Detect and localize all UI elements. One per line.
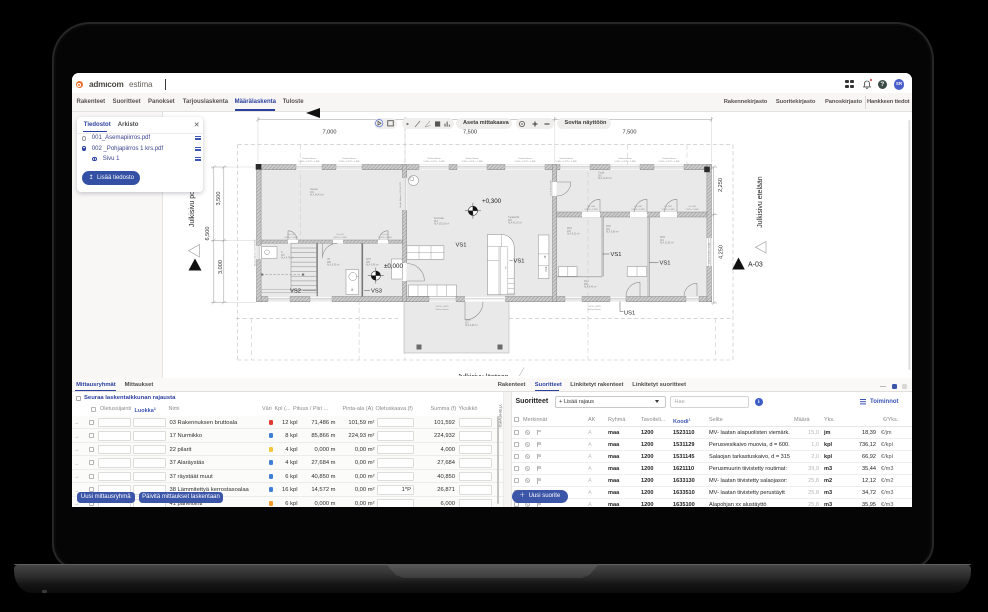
svg-text:1,970 x 2,085: 1,970 x 2,085	[631, 209, 645, 211]
svg-text:ALA 4,78 m²: ALA 4,78 m²	[281, 257, 294, 260]
svg-text:Ovi 008: Ovi 008	[664, 206, 672, 208]
svg-text:Vierha ikkuna: Vierha ikkuna	[465, 157, 479, 160]
svg-text:Ovi 0,8: Ovi 0,8	[288, 234, 296, 236]
svg-text:Käyt: Käyt	[584, 280, 589, 283]
svg-text:Brusva ikkuna 1,975x0,875: Brusva ikkuna 1,975x0,875	[253, 239, 256, 266]
svg-text:Tupakeittiö: Tupakeittiö	[508, 216, 520, 219]
svg-text:+0,300: +0,300	[482, 198, 502, 205]
svg-text:1,970 x 2,085: 1,970 x 2,085	[584, 209, 598, 211]
svg-text:JK: JK	[543, 255, 547, 258]
svg-text:1,873 x 0,875: 1,873 x 0,875	[587, 306, 601, 308]
svg-text:Tuulik.: Tuulik.	[598, 173, 605, 175]
svg-text:ALA 3,06 m²: ALA 3,06 m²	[327, 264, 340, 267]
svg-text:VS2: VS2	[290, 289, 301, 295]
svg-text:Vierha ikkuna 1,970x2,275: Vierha ikkuna 1,970x2,275	[399, 181, 402, 208]
svg-text:Ovi 0,8: Ovi 0,8	[382, 234, 390, 236]
svg-text:US1: US1	[624, 311, 635, 317]
svg-text:7,500: 7,500	[623, 130, 637, 136]
svg-text:1,970 x 2,275 + 1,985: 1,970 x 2,275 + 1,985	[298, 161, 320, 163]
svg-text:2,250: 2,250	[718, 178, 724, 192]
svg-text:Ovi 0,8: Ovi 0,8	[337, 234, 345, 236]
svg-text:ALA 11,85 m²: ALA 11,85 m²	[660, 242, 674, 245]
svg-text:KHH: KHH	[366, 259, 371, 261]
svg-text:1,970 x 2,275 + 1,985: 1,970 x 2,275 + 1,985	[423, 161, 445, 163]
svg-text:ALA 4,68 m²: ALA 4,68 m²	[465, 324, 478, 327]
svg-text:1,970 x 2,275 + 1,985: 1,970 x 2,275 + 1,985	[461, 161, 483, 163]
svg-text:ALA 41,32 m²: ALA 41,32 m²	[508, 222, 522, 225]
svg-text:lt: lt	[352, 288, 354, 292]
svg-text:0,875 x 2,085: 0,875 x 2,085	[333, 237, 347, 239]
svg-text:4,250: 4,250	[718, 245, 724, 259]
svg-text:1,873 x 0,875: 1,873 x 0,875	[435, 306, 449, 308]
svg-text:1,970 x 2,275 + 1,985: 1,970 x 2,275 + 1,985	[514, 161, 536, 163]
svg-text:Vierha ikkuna: Vierha ikkuna	[518, 157, 532, 160]
svg-text:0,875 x 2,085: 0,875 x 2,085	[284, 237, 298, 239]
svg-text:Vierha ikkuna: Vierha ikkuna	[302, 157, 316, 160]
svg-text:0,875 x 2,085: 0,875 x 2,085	[378, 237, 392, 239]
svg-text:Vierha ikkuna: Vierha ikkuna	[427, 157, 441, 160]
svg-text:±0,000: ±0,000	[384, 263, 403, 270]
svg-text:MH3: MH3	[660, 237, 666, 239]
svg-text:Vierha ikkuna: Vierha ikkuna	[435, 308, 449, 311]
svg-text:Ovi 008: Ovi 008	[688, 206, 696, 208]
svg-text:Julkisivu etelään: Julkisivu etelään	[757, 176, 764, 227]
svg-text:7,500: 7,500	[463, 130, 477, 136]
svg-text:ALA 5,23 m²: ALA 5,23 m²	[567, 233, 580, 236]
svg-text:PAK: PAK	[544, 266, 548, 271]
svg-text:6,500: 6,500	[205, 227, 211, 241]
svg-text:1,970 x 2,085: 1,970 x 2,085	[661, 209, 675, 211]
svg-text:ALA 14,81 m²: ALA 14,81 m²	[598, 177, 612, 180]
svg-text:MH1: MH1	[567, 228, 573, 230]
svg-text:7,000: 7,000	[323, 130, 337, 136]
svg-text:ALA 24,43 m²: ALA 24,43 m²	[310, 194, 324, 197]
svg-text:VS1: VS1	[514, 259, 525, 265]
svg-text:ALA 6,45 m²: ALA 6,45 m²	[584, 286, 597, 289]
svg-text:1,970 x 2,085: 1,970 x 2,085	[685, 209, 699, 211]
svg-text:Vierha ikkuna: Vierha ikkuna	[342, 157, 356, 160]
svg-text:1,970 x 2,275 + 1,985: 1,970 x 2,275 + 1,985	[614, 161, 636, 163]
svg-text:1,970 x 2,275 + 1,985: 1,970 x 2,275 + 1,985	[709, 242, 711, 264]
svg-text:A-03: A-03	[748, 262, 763, 269]
svg-text:Varasto: Varasto	[310, 188, 318, 191]
svg-text:Vierha ikkuna: Vierha ikkuna	[618, 157, 632, 160]
svg-text:MH2: MH2	[606, 226, 612, 228]
svg-text:1,970 x 2,275 + 1,985: 1,970 x 2,275 + 1,985	[658, 161, 680, 163]
svg-text:ALA 5,96 m²: ALA 5,96 m²	[366, 264, 379, 267]
svg-text:3,500: 3,500	[216, 192, 222, 206]
svg-text:VH: VH	[327, 259, 331, 261]
svg-text:VS1: VS1	[660, 261, 671, 267]
svg-text:ALA 5,88 m²: ALA 5,88 m²	[606, 231, 619, 234]
svg-text:Kerrosala: Kerrosala	[434, 217, 445, 220]
svg-text:VS1: VS1	[611, 252, 622, 258]
svg-text:Ovi 008: Ovi 008	[587, 206, 595, 208]
svg-text:Vierha ikkuna: Vierha ikkuna	[662, 157, 676, 160]
svg-text:VS3: VS3	[371, 289, 382, 295]
svg-text:Julkisivu länteen: Julkisivu länteen	[457, 374, 508, 376]
svg-text:ALA 101,03 m²: ALA 101,03 m²	[434, 223, 449, 226]
svg-text:3,000: 3,000	[218, 260, 224, 274]
svg-text:VS1: VS1	[456, 243, 467, 249]
svg-text:Vierha ikkuna: Vierha ikkuna	[559, 157, 573, 160]
svg-text:1,970 x 2,275 + 1,985: 1,970 x 2,275 + 1,985	[338, 161, 360, 163]
svg-text:Ovi 008: Ovi 008	[634, 206, 642, 208]
svg-text:1,970 x 2,275 + 1,985: 1,970 x 2,275 + 1,985	[555, 161, 577, 163]
svg-text:Vierha ikkuna: Vierha ikkuna	[587, 308, 601, 311]
svg-text:Ovi 0,875x2,085: Ovi 0,875x2,085	[551, 179, 553, 196]
